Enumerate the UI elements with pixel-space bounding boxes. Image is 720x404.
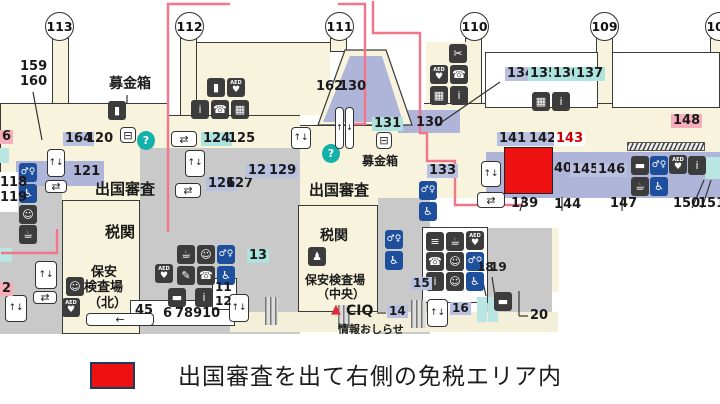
ramp-lane-down-icon: ↓ <box>345 107 354 149</box>
ciq-label: CIQ <box>346 304 373 319</box>
security-central-line2: （中央） <box>317 288 365 301</box>
number-160: 160 <box>20 75 47 89</box>
customs-right: 税関 <box>320 229 348 244</box>
number-131: 131 <box>372 117 403 131</box>
number-127: 127 <box>226 177 253 191</box>
drinking-water-icon: ☕ <box>446 232 464 251</box>
number-125: 125 <box>228 132 255 146</box>
question-info-icon: ? <box>137 131 155 150</box>
toilets-icon: ♂♀ <box>419 181 437 200</box>
number-148: 148 <box>671 114 702 128</box>
baby-care-icon: ☺ <box>446 272 464 291</box>
number-15: 15 <box>411 277 432 290</box>
legend-text: 出国審査を出て右側の免税エリア内 <box>178 357 562 391</box>
toilets-icon: ♂♀ <box>217 245 235 264</box>
beige-sliver-right <box>552 228 559 292</box>
collection-box-icon: ▮ <box>108 101 126 120</box>
number-119: 119 <box>0 191 27 205</box>
number-139: 139 <box>511 197 538 211</box>
moving-walkway-icon: ⇄ <box>171 131 197 147</box>
customs-left: 税関 <box>105 225 135 241</box>
vending-icon: ≡ <box>426 232 444 251</box>
elevator-icon: ↑↓ <box>5 295 27 322</box>
number-120: 120 <box>86 132 113 146</box>
ciq-triangle: ▲ <box>331 303 341 317</box>
number-147: 147 <box>610 197 637 211</box>
gate-112: 112 <box>175 12 204 41</box>
toilets-icon: ♂♀ <box>385 230 403 249</box>
donation-box-icon: ⊟ <box>376 132 392 149</box>
number-121: 121 <box>73 165 100 179</box>
highlight-red-square <box>504 147 553 194</box>
wheelchair-icon: ♿ <box>650 177 668 196</box>
customs-counter-icon: ♟ <box>308 247 326 266</box>
phone-icon: ☎ <box>197 266 215 285</box>
drinking-water-icon: ☕ <box>19 225 37 244</box>
baby-care-icon: ☺ <box>197 245 215 264</box>
number-144: 144 <box>554 198 581 212</box>
smoking-icon: ▬ <box>494 292 512 311</box>
elevator-icon: ↑↓ <box>229 294 249 322</box>
airport-floor-map-figure: ▮⊟?⇄↑↓⇄↑↓⇄♂♀♿☺☕↑↓⇄↑↓☺AED♥☕☺♂♀AED♥✎☎♿▬i↑↓… <box>0 0 720 404</box>
number-159: 159 <box>20 60 47 74</box>
grooming-icon: ✎ <box>177 266 195 285</box>
aed-icon: AED♥ <box>227 78 245 97</box>
phone-icon: ☎ <box>450 65 468 84</box>
info-phone-icon: i <box>552 92 570 111</box>
phone-icon: ☎ <box>211 100 229 119</box>
baby-care-icon: ☺ <box>66 277 84 296</box>
number-11: 11 <box>215 281 232 294</box>
smoking-icon: ▬ <box>631 156 649 175</box>
gate-111: 111 <box>325 12 354 41</box>
legend: 出国審査を出て右側の免税エリア内 <box>0 348 720 398</box>
elevator-icon: ↑↓ <box>35 261 57 289</box>
legend-red-swatch <box>90 362 135 389</box>
wheelchair-icon: ♿ <box>385 251 403 270</box>
departure-immigration-left: 出国審査 <box>95 182 155 198</box>
info-phone-icon: i <box>450 86 468 105</box>
donation-box-label-left: 募金箱 <box>109 77 151 92</box>
collection-box-icon: ▮ <box>207 78 225 97</box>
baby-care-icon: ☺ <box>446 252 464 271</box>
donation-box-label-center: 募金箱 <box>362 155 398 168</box>
internet-icon: ▦ <box>430 86 448 105</box>
security-north-line2: 検査場 <box>84 281 123 295</box>
room-right <box>612 52 720 108</box>
internet-icon: ▦ <box>532 92 550 111</box>
moving-walkway-icon: ⇄ <box>45 180 67 193</box>
elevator-icon: ↑↓ <box>427 299 448 327</box>
teal-patch-left-mid <box>0 248 12 262</box>
number-143: 143 <box>554 132 585 146</box>
number-150: 150 <box>673 197 700 211</box>
departure-immigration-right: 出国審査 <box>309 183 369 199</box>
moving-walkway-icon: ⇄ <box>477 192 505 208</box>
gate-113: 113 <box>45 12 74 41</box>
info-phone-icon: i <box>191 100 209 119</box>
escalator-icon: ↑↓ <box>185 150 205 177</box>
aed-icon: AED♥ <box>669 155 687 174</box>
number-118: 118 <box>0 176 27 190</box>
number-151: 151 <box>698 197 720 211</box>
terminal-map: ▮⊟?⇄↑↓⇄↑↓⇄♂♀♿☺☕↑↓⇄↑↓☺AED♥☕☺♂♀AED♥✎☎♿▬i↑↓… <box>0 0 720 334</box>
drinking-water-icon: ☕ <box>177 245 195 264</box>
number-141: 141 <box>497 132 528 146</box>
number-146: 146 <box>596 163 627 177</box>
number-16: 16 <box>450 302 471 315</box>
aed-icon: AED♥ <box>430 65 448 84</box>
aed-icon: AED♥ <box>62 298 80 317</box>
number-20: 20 <box>530 309 548 323</box>
pillar-hatch-3 <box>411 300 426 328</box>
number-5-6: 6 <box>163 307 172 321</box>
wheelchair-icon: ♿ <box>466 272 484 291</box>
number-13: 13 <box>247 249 269 263</box>
internet-icon: ▦ <box>231 100 249 119</box>
teal-patch-left-top <box>0 148 9 163</box>
info-notice-label-clipped: 情報おしらせ <box>338 324 404 334</box>
number-14: 14 <box>387 305 408 318</box>
escalator-icon: ↑↓ <box>481 161 501 187</box>
gate-110: 110 <box>460 12 489 41</box>
number-45: 45 <box>135 304 153 318</box>
smoking-icon: ▬ <box>168 288 186 307</box>
info-icon: i <box>195 288 213 307</box>
donation-box-icon: ⊟ <box>120 127 136 143</box>
escalator-icon: ↑↓ <box>47 149 65 177</box>
aed-icon: AED♥ <box>155 264 173 283</box>
number-6-partial: 6 <box>0 130 13 144</box>
walkway-hatch <box>627 142 705 151</box>
toilets-icon: ♂♀ <box>650 156 668 175</box>
stem-113 <box>52 38 69 104</box>
number-12: 12 <box>215 295 232 308</box>
number-130-band: 130 <box>416 116 443 130</box>
gate-109: 109 <box>590 12 619 41</box>
moving-walkway-icon: ⇄ <box>175 183 201 198</box>
wheelchair-icon: ♿ <box>419 202 437 221</box>
teal-patch-18 <box>477 297 487 322</box>
phone-icon: ☎ <box>426 252 444 271</box>
security-north-line1: 保安 <box>91 266 117 280</box>
number-130-ramp: 130 <box>339 80 366 94</box>
teal-patch-150 <box>705 157 720 179</box>
baby-care-icon: ☺ <box>19 205 37 224</box>
security-north-line3: （北） <box>88 297 127 311</box>
ramp-lane-up-icon: ↑ <box>335 107 344 149</box>
number-2-partial: 2 <box>0 282 13 296</box>
number-137: 137 <box>574 67 605 81</box>
security-central-line1: 保安検査場 <box>305 274 365 287</box>
number-133: 133 <box>427 164 458 178</box>
number-129: 129 <box>267 164 298 178</box>
escalator-icon: ↑↓ <box>291 127 311 149</box>
moving-walkway-icon: ⇄ <box>33 291 57 304</box>
grooming-icon: ✂ <box>449 44 467 63</box>
pillar-hatch-1 <box>265 297 278 325</box>
drinking-water-icon: ☕ <box>631 177 649 196</box>
info-icon: i <box>688 156 706 175</box>
aed-icon: AED♥ <box>466 231 484 250</box>
number-78910: 78910 <box>175 307 220 321</box>
number-19: 19 <box>490 261 507 274</box>
gate-108-partial: 108 <box>705 12 720 41</box>
